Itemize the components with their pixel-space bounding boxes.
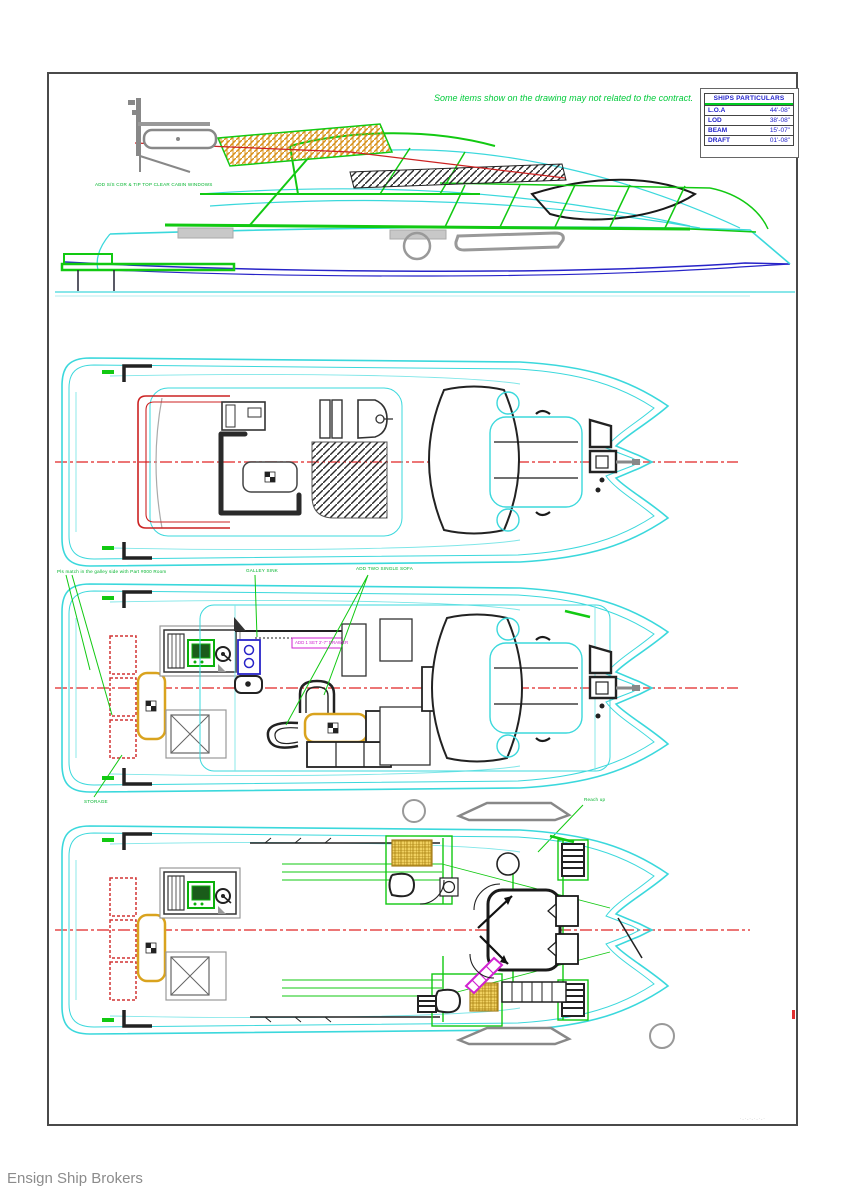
deck-box (178, 228, 233, 238)
lower-deck-plan-drawing (50, 778, 800, 1070)
flybridge-sunpad-hatched (312, 442, 387, 518)
main-deck-annotation-mid: GALLEY SINK (246, 568, 278, 573)
main-deck-annotation-right: ADD TWO SINGLE SOFA (356, 566, 413, 571)
border-red-mark (792, 1010, 795, 1019)
cabin-porthole (497, 853, 519, 875)
windshield-plan (432, 615, 522, 762)
swim-platform (62, 254, 234, 291)
cabinet (342, 624, 366, 676)
bow-railing (440, 183, 768, 229)
flybridge-plan-drawing (50, 350, 800, 568)
transom-platform (459, 803, 569, 820)
hull-steps-port (558, 840, 588, 880)
deck-box (390, 230, 446, 239)
flybridge-wet-bar (222, 402, 265, 430)
cabinet (380, 619, 412, 661)
deck-hatch-ring (403, 800, 425, 822)
main-deck-annotation-left: Pls match in the galley side with Part #… (57, 569, 166, 574)
hull-window (456, 233, 563, 250)
lower-deck-annotation: Reach up (584, 797, 605, 802)
main-deck-annotation-stern: STORAGE (84, 799, 108, 804)
small-ladder (418, 996, 436, 1012)
profile-annotation: ADD S/S COR & TIP TOP CLEAR CABIN WINDOW… (95, 182, 213, 187)
round-chair (268, 723, 298, 748)
helm-seat (332, 400, 342, 438)
slatted-bench (502, 982, 566, 1002)
helm-console (358, 400, 393, 438)
dinette-arch-seat (300, 681, 334, 713)
helm-seat (320, 400, 330, 438)
cabinet (380, 707, 430, 765)
galley-sink-unit (238, 640, 260, 674)
galley-counter-annotation: ADD 1 SET 2'-7" DRAWER (295, 640, 348, 645)
corner-signature-mark: ·‐·‐·‐·‐·‐· (740, 1116, 766, 1121)
profile-view-drawing (50, 86, 800, 314)
broker-watermark: Ensign Ship Brokers (7, 1170, 143, 1187)
bimini-hatched-panel (218, 124, 392, 166)
deck-hatch-ring (650, 1024, 674, 1048)
hardtop-plan (429, 387, 519, 534)
mast-radar-arch (128, 98, 216, 172)
drawing-page: Some items show on the drawing may not r… (0, 0, 848, 1200)
